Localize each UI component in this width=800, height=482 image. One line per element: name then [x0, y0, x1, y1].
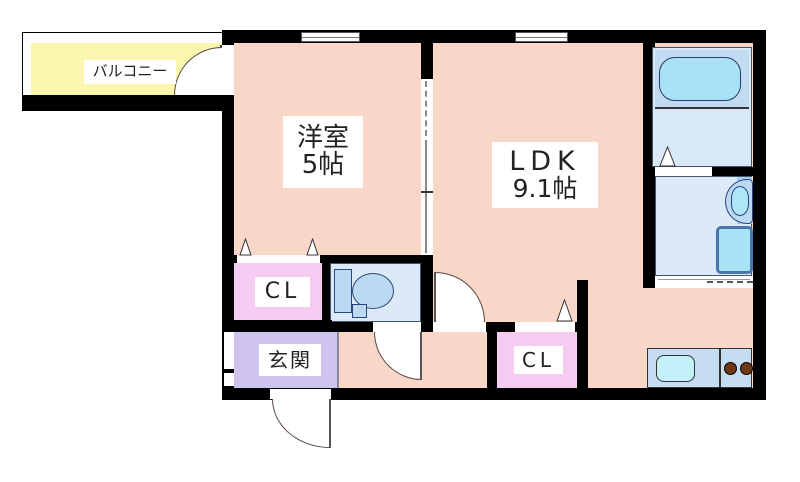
entrance-label: 玄関 [259, 344, 321, 376]
closet2-folding-door-opening [515, 322, 575, 332]
wall [712, 167, 753, 176]
western-room-size: 5帖 [302, 152, 345, 179]
stove-burner-icon [724, 362, 737, 375]
kitchen-divider-line [719, 348, 721, 388]
ldk-size: 9.1帖 [513, 176, 578, 202]
door-swing-arc [272, 399, 330, 448]
folding-door-triangle-icon [239, 238, 252, 256]
balcony-door-opening [221, 45, 234, 95]
closet2-label: CL [514, 346, 563, 374]
balcony-label: バルコニー [84, 60, 176, 84]
closet2-text: CL [522, 350, 555, 371]
wall-inset [224, 373, 234, 386]
toilet-door-opening [373, 322, 421, 332]
entrance-door-leaf [329, 399, 331, 448]
washer-pan-icon [716, 226, 753, 274]
sliding-door-tick [421, 191, 433, 193]
ldk-door-leaf [434, 272, 436, 322]
wall [222, 320, 332, 332]
wall [577, 280, 588, 390]
bathtub-icon [659, 57, 741, 101]
folding-door-triangle-icon [659, 146, 676, 167]
closet1-folding-door-opening [237, 255, 320, 263]
toilet-paper-holder-icon [352, 304, 367, 318]
closet1-label: CL [255, 277, 310, 307]
folding-door-triangle-icon [306, 238, 319, 256]
wall [487, 332, 497, 388]
balcony-text: バルコニー [93, 64, 168, 80]
washroom-door-track [658, 279, 750, 280]
sink-basin-icon [731, 186, 749, 216]
bathtub-zone-line [655, 107, 749, 109]
toilet-tank-icon [334, 269, 352, 313]
sliding-door-panel [425, 140, 427, 253]
window-pane-line [302, 37, 359, 38]
entrance-door-opening [270, 389, 331, 399]
toilet-door-leaf [420, 332, 422, 380]
entrance-text: 玄関 [268, 350, 312, 371]
floor-plan: CL 玄関 CL [0, 0, 800, 482]
washroom-door-dashes [707, 281, 753, 283]
entrance-step-line [337, 332, 339, 388]
closet1-text: CL [265, 280, 301, 303]
kitchen-sink-icon [656, 355, 695, 382]
stove-burner-icon [740, 362, 753, 375]
bath-door-opening [655, 167, 712, 176]
balcony-bottom-wall [22, 95, 234, 111]
western-room-name: 洋室 [297, 125, 349, 152]
wall [421, 255, 433, 332]
sliding-door-pocket-dashes [425, 81, 427, 136]
folding-door-triangle-icon [556, 299, 573, 322]
window-icon [515, 32, 568, 42]
partition-wall [421, 43, 433, 79]
ldk-label: LDK 9.1帖 [492, 142, 598, 208]
window-pane-line [516, 37, 567, 38]
western-room-label: 洋室 5帖 [283, 116, 363, 188]
sliding-door-track [421, 79, 433, 255]
wall-inset [224, 332, 234, 369]
window-icon [301, 32, 360, 42]
ldk-door-opening [433, 322, 486, 332]
ldk-name: LDK [509, 148, 581, 176]
